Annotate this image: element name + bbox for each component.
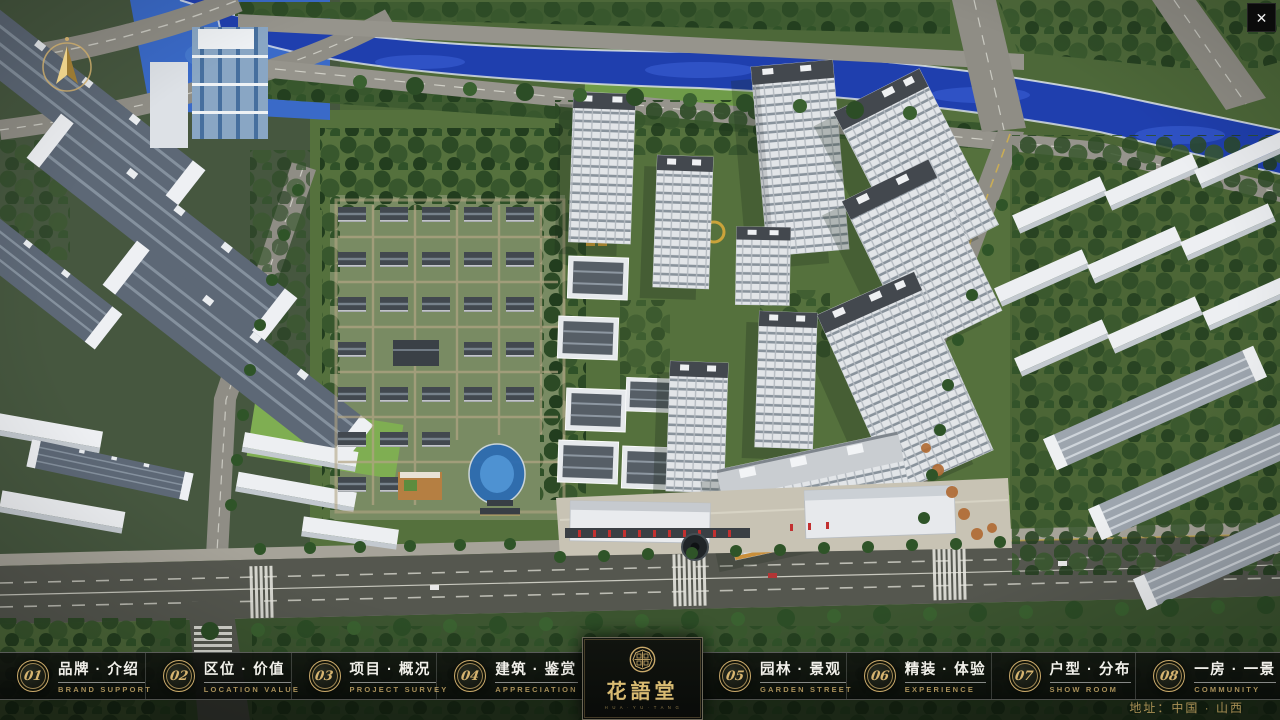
nav-number-badge: 08 <box>1153 660 1185 692</box>
nav-item-sublabel: EXPERIENCE <box>905 685 986 694</box>
brand-title: 花語堂 <box>607 675 679 704</box>
compass-icon <box>38 34 96 96</box>
nav-item-sublabel: GARDEN STREET <box>760 685 846 694</box>
nav-item-brand[interactable]: 01 品牌 · 介绍 BRAND SUPPORT <box>0 653 145 699</box>
nav-item-sublabel: BRAND SUPPORT <box>58 685 145 694</box>
nav-item-architecture[interactable]: 04 建筑 · 鉴赏 APPRECIATION <box>436 653 582 699</box>
project-address: 地址：中国 · 山西 <box>1129 699 1244 716</box>
nav-item-sublabel: APPRECIATION <box>495 685 578 694</box>
nav-item-label: 品牌 · 介绍 <box>58 658 145 683</box>
nav-number-badge: 02 <box>163 660 195 692</box>
brand-caption: H U A · Y U · T A N G <box>605 705 681 710</box>
nav-item-label: 户型 · 分布 <box>1050 658 1131 683</box>
app-window: ✕ 01 品牌 · 介绍 BRAND SUPPORT 02 区位 · 价值 LO… <box>0 0 1280 720</box>
nav-item-interior[interactable]: 06 精装 · 体验 EXPERIENCE <box>846 653 991 699</box>
nav-item-sublabel: SHOW ROOM <box>1050 685 1131 694</box>
nav-item-label: 项目 · 概况 <box>350 658 437 683</box>
nav-item-sublabel: LOCATION VALUE <box>204 685 291 694</box>
nav-number-badge: 01 <box>17 660 49 692</box>
nav-group-left: 01 品牌 · 介绍 BRAND SUPPORT 02 区位 · 价值 LOCA… <box>0 653 582 699</box>
brand-seal-icon <box>629 646 656 673</box>
nav-item-garden[interactable]: 05 园林 · 景观 GARDEN STREET <box>701 653 846 699</box>
nav-item-label: 园林 · 景观 <box>760 658 846 683</box>
nav-number-badge: 03 <box>309 660 341 692</box>
nav-item-label: 区位 · 价值 <box>204 658 291 683</box>
render-aerial-view <box>0 0 1280 720</box>
nav-item-project[interactable]: 03 项目 · 概况 PROJECT SURVEY <box>291 653 437 699</box>
nav-item-label: 建筑 · 鉴赏 <box>495 658 578 683</box>
nav-item-label: 一房 · 一景 <box>1194 658 1275 683</box>
close-button[interactable]: ✕ <box>1247 3 1276 32</box>
nav-group-right: 05 园林 · 景观 GARDEN STREET 06 精装 · 体验 EXPE… <box>701 653 1280 699</box>
nav-number-badge: 05 <box>719 660 751 692</box>
nav-item-sublabel: PROJECT SURVEY <box>350 685 437 694</box>
nav-item-sublabel: COMMUNITY <box>1194 685 1275 694</box>
nav-item-label: 精装 · 体验 <box>905 658 986 683</box>
nav-number-badge: 07 <box>1009 660 1041 692</box>
nav-item-floorplan[interactable]: 07 户型 · 分布 SHOW ROOM <box>991 653 1136 699</box>
nav-number-badge: 06 <box>864 660 896 692</box>
nav-number-badge: 04 <box>454 660 486 692</box>
nav-item-location[interactable]: 02 区位 · 价值 LOCATION VALUE <box>145 653 291 699</box>
logo-panel[interactable]: 花語堂 H U A · Y U · T A N G <box>582 637 703 720</box>
nav-item-views[interactable]: 08 一房 · 一景 COMMUNITY <box>1135 653 1280 699</box>
